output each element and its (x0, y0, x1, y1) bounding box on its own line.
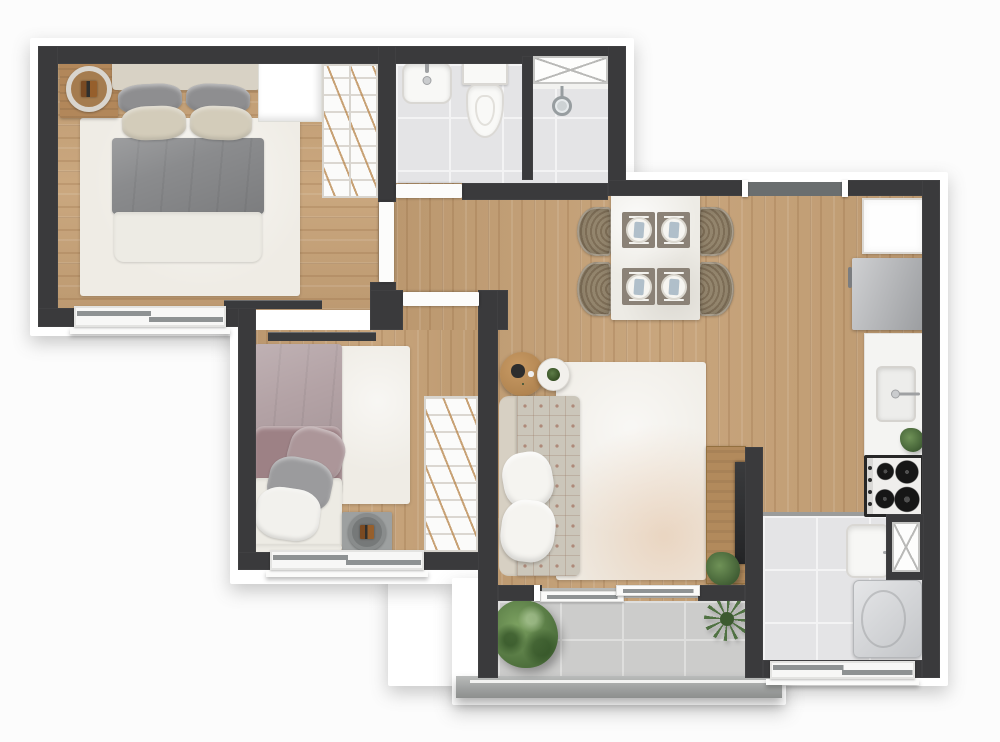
bedroom1-window (74, 306, 226, 327)
stove (864, 455, 924, 517)
service-duct-shaft (892, 522, 920, 572)
kitchen-cabinet (862, 198, 924, 254)
balcony-door-panel-right (616, 585, 700, 596)
bedroom2-tv (268, 332, 376, 341)
wall-service-west (745, 447, 763, 678)
dining-chair-left-1 (577, 207, 612, 256)
dining-chair-left-2 (577, 262, 612, 316)
balcony-door-panel-left (540, 591, 624, 602)
wall-bathroom-east (608, 46, 626, 196)
side-table-white (537, 358, 570, 391)
bedroom1-window-sill (70, 327, 230, 334)
balcony-bush (492, 600, 558, 668)
place-setting-4 (657, 268, 690, 305)
wall-west (38, 46, 58, 327)
service-window (770, 661, 915, 679)
place-setting-1 (622, 212, 655, 248)
wall-shower-divider (522, 56, 533, 180)
kitchen-plant (900, 428, 924, 452)
wall-bedroom2-west (238, 308, 256, 570)
entry-threshold (748, 182, 842, 196)
bedroom2-window-sill (266, 570, 428, 577)
laundry-tank (846, 524, 890, 578)
bedroom2-door (403, 292, 479, 306)
entry-jamb-left (742, 180, 748, 197)
kitchen-sink (876, 366, 916, 422)
bedroom1-door (379, 202, 394, 282)
wall-bedroom1-east (378, 46, 396, 202)
bathroom-duct-shaft (533, 56, 608, 84)
bathroom-door (396, 184, 462, 198)
wall-living-north-left (608, 180, 748, 196)
wall-east (922, 180, 940, 678)
nightstand1-tray (66, 66, 112, 112)
bedroom1-shelf (258, 60, 322, 122)
entry-jamb-right (842, 180, 848, 197)
wall-bathroom-south (462, 183, 608, 200)
place-setting-2 (657, 212, 690, 248)
balcony-door-jamb (534, 585, 540, 601)
console-plant (706, 552, 740, 586)
bed1-duvet (112, 138, 264, 214)
refrigerator (852, 258, 924, 330)
balcony-plant-spiky (704, 597, 750, 641)
bathroom-sink (402, 62, 452, 104)
bedroom2-wardrobe (424, 396, 478, 552)
bed1-pillow-beige-right (189, 105, 252, 141)
nightstand2-tray (348, 513, 386, 551)
place-setting-3 (622, 268, 655, 305)
shower-head (552, 96, 572, 116)
bedroom2-window (270, 550, 424, 570)
wall-hall-south-left (370, 290, 403, 330)
bedroom1-wardrobe-divider (349, 66, 351, 196)
service-window-sill (766, 679, 919, 685)
floor-plan-canvas (0, 0, 1000, 742)
wall-living-west (478, 290, 498, 678)
balcony-railing (456, 676, 782, 698)
bed1-sheet (114, 212, 262, 262)
bed1-pillow-beige-left (121, 105, 186, 141)
wall-balcony-door-right (698, 585, 745, 601)
bedroom2-rug (338, 346, 410, 504)
shower-threshold (533, 84, 608, 89)
washing-machine (853, 580, 922, 658)
